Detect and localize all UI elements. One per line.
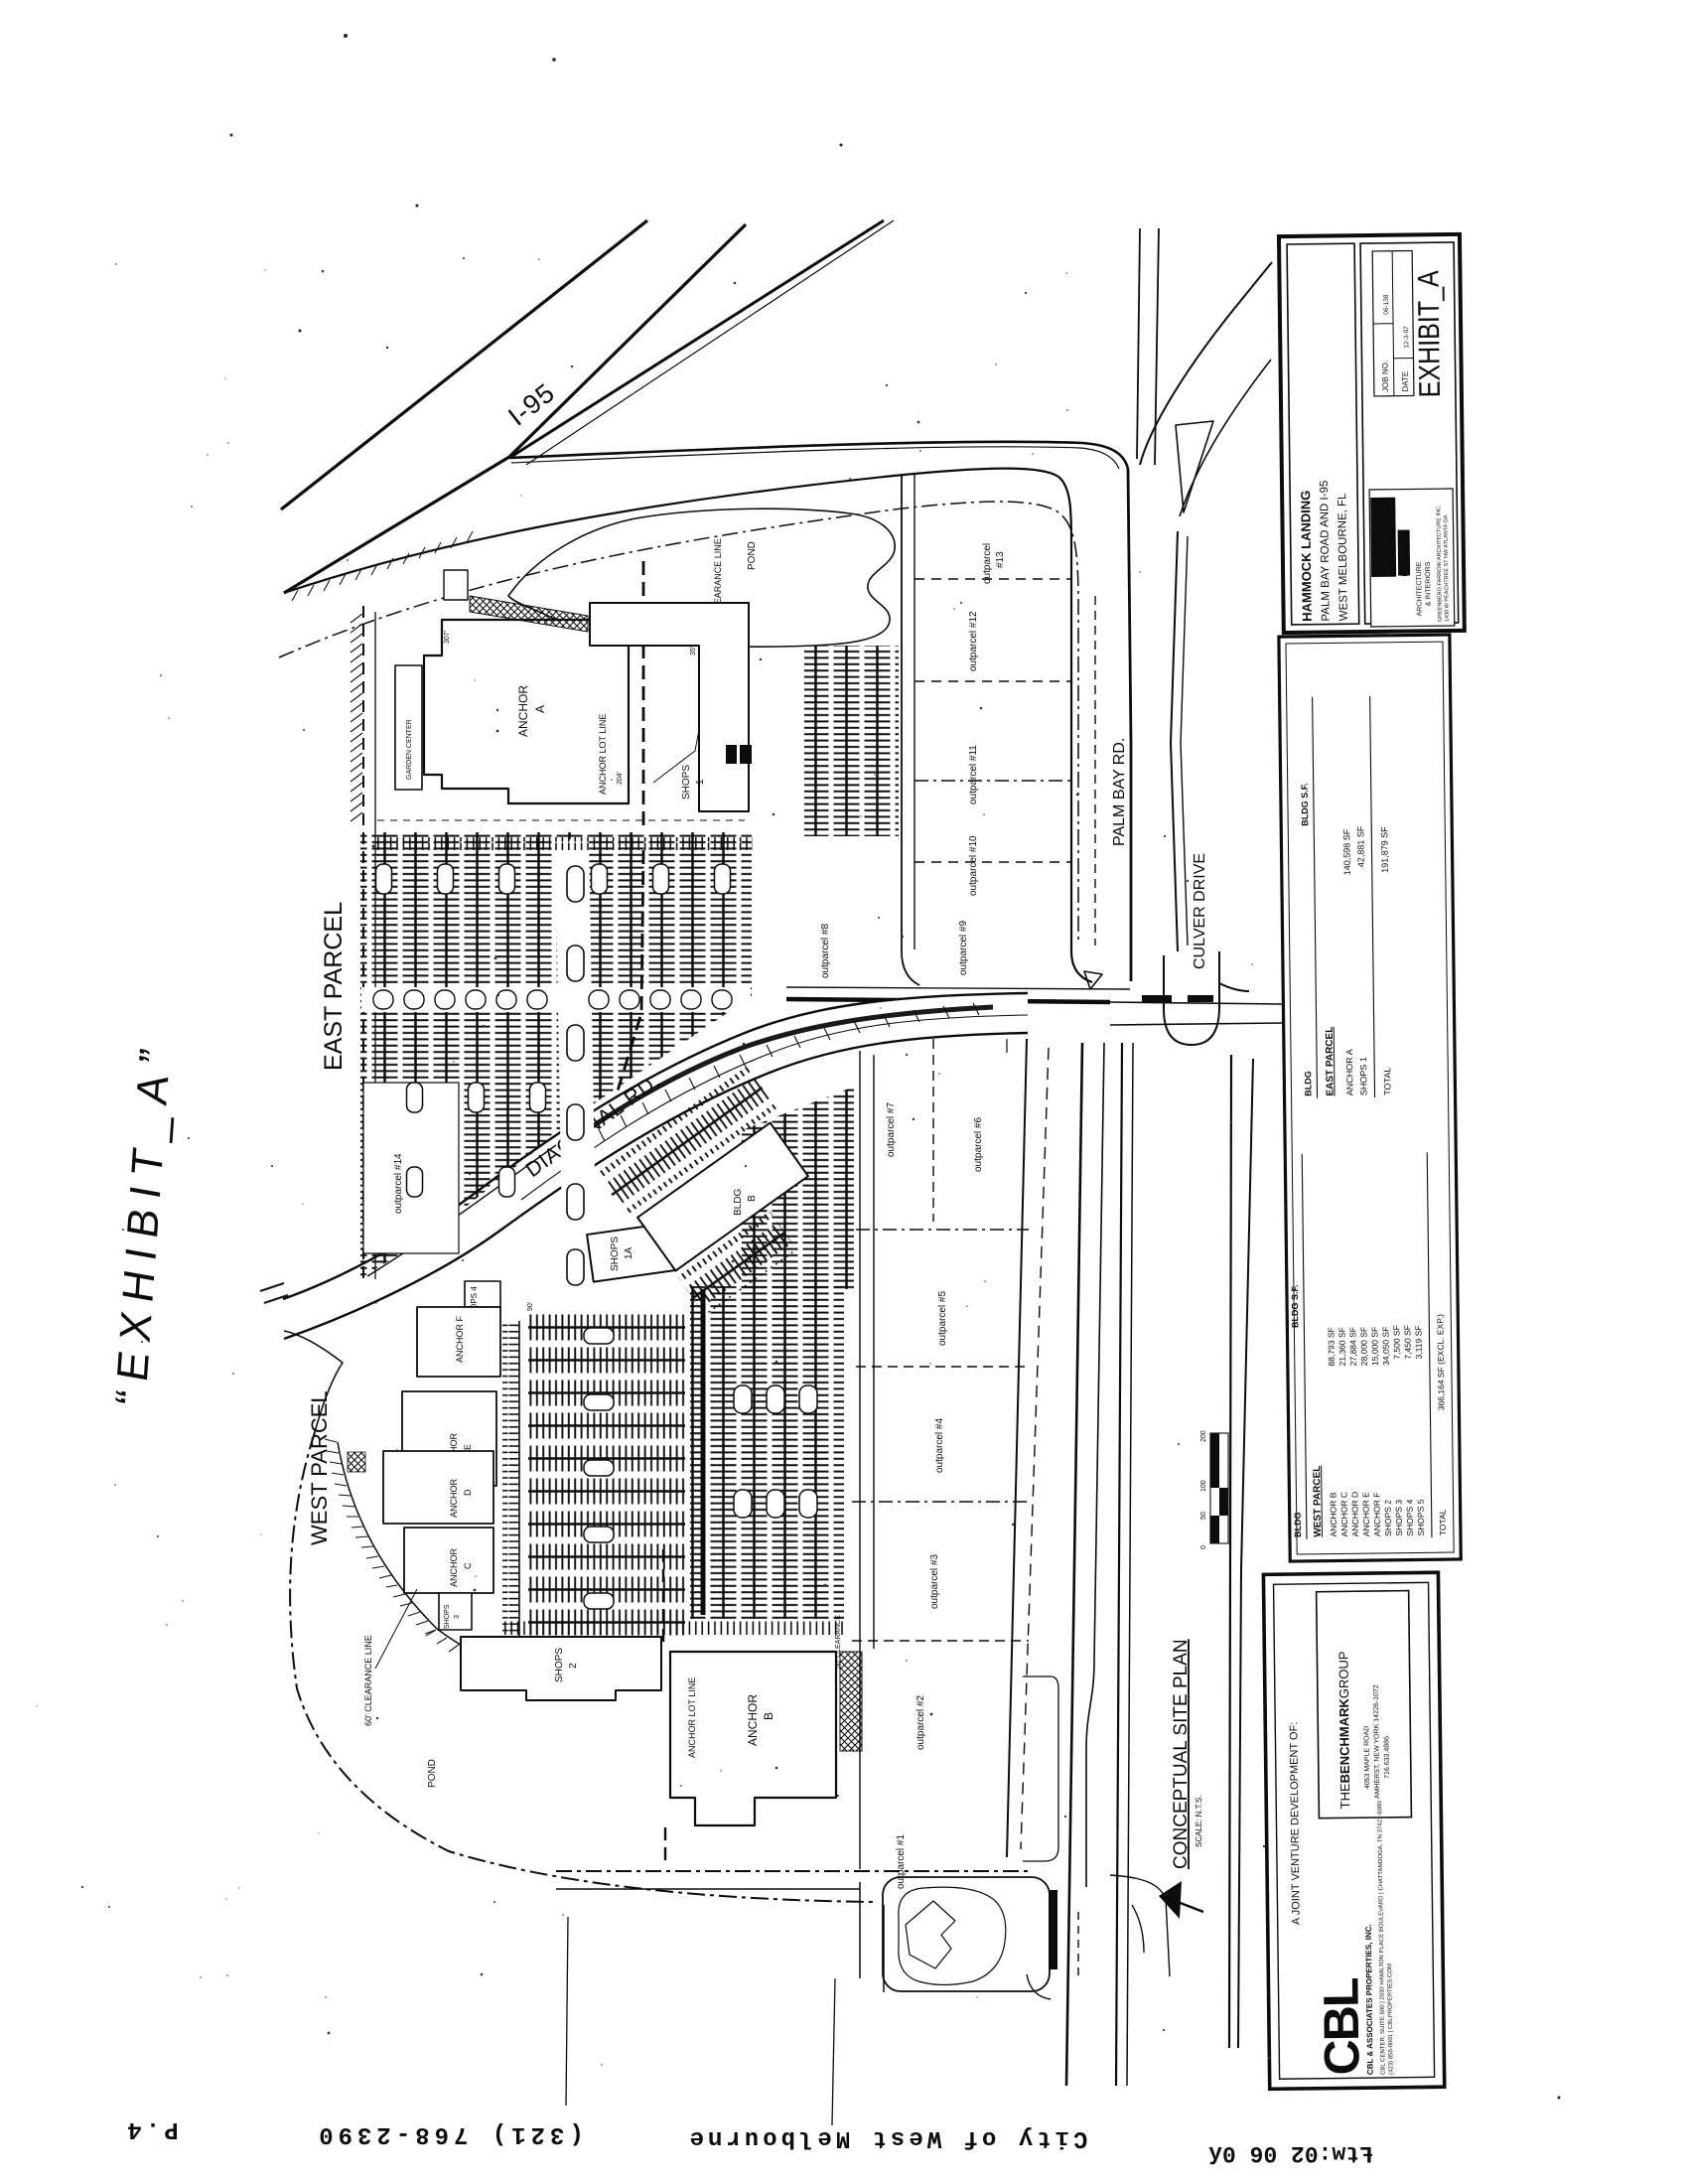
svg-text:CONCEPTUAL SITE PLAN: CONCEPTUAL SITE PLAN (1171, 1639, 1192, 1869)
svg-text:outparcel #5: outparcel #5 (937, 1291, 948, 1346)
svg-text:1A: 1A (624, 1246, 634, 1259)
svg-text:THEBENCHMARKGROUP: THEBENCHMARKGROUP (1336, 1651, 1352, 1809)
svg-text:HAMMOCK LANDING: HAMMOCK LANDING (1298, 491, 1315, 622)
svg-text:366,164 SF (EXCL. EXP.): 366,164 SF (EXCL. EXP.) (1435, 1314, 1446, 1410)
svg-text:WEST PARCEL: WEST PARCEL (307, 1390, 332, 1545)
svg-text:SHOPS: SHOPS (681, 765, 692, 800)
svg-text:B: B (762, 1712, 775, 1720)
svg-text:E: E (463, 1444, 473, 1450)
svg-text:ANCHOR C: ANCHOR C (1338, 1492, 1349, 1536)
svg-text:SCALE: N.T.S.: SCALE: N.T.S. (1195, 1796, 1203, 1847)
svg-text:C: C (463, 1562, 473, 1569)
svg-text:DATE: DATE (1401, 371, 1410, 392)
svg-text:ANCHOR: ANCHOR (449, 1478, 459, 1518)
svg-text:outparcel #7: outparcel #7 (886, 1102, 897, 1157)
svg-text:D: D (463, 1489, 473, 1496)
svg-text:ANCHOR: ANCHOR (449, 1547, 459, 1587)
svg-text:EXHIBIT_A: EXHIBIT_A (1412, 270, 1447, 397)
svg-text:ANCHOR E: ANCHOR E (1360, 1492, 1371, 1536)
svg-text:ANCHOR D: ANCHOR D (1349, 1492, 1360, 1536)
svg-text:AMHERST, NEW YORK 14226-1072: AMHERST, NEW YORK 14226-1072 (1373, 1684, 1381, 1799)
svg-text:200: 200 (1200, 1430, 1207, 1442)
svg-text:TOTAL: TOTAL (1438, 1509, 1448, 1535)
svg-text:JOB NO.: JOB NO. (1380, 361, 1389, 392)
svg-text:BLDG: BLDG (1293, 1512, 1303, 1537)
svg-text:outparcel #10: outparcel #10 (968, 835, 979, 896)
svg-text:A: A (533, 705, 547, 713)
svg-text:3,119 SF: 3,119 SF (1413, 1326, 1423, 1360)
svg-text:4053 MAPLE ROAD: 4053 MAPLE ROAD (1363, 1726, 1371, 1790)
svg-text:RETAIL: RETAIL (1402, 551, 1409, 577)
svg-text:2: 2 (568, 1663, 579, 1669)
svg-text:CBL: CBL (1313, 1978, 1369, 2076)
svg-text:307': 307' (444, 631, 451, 644)
svg-text:PALM BAY RD.: PALM BAY RD. (1111, 738, 1128, 846)
svg-text:204': 204' (617, 772, 624, 785)
svg-text:SHOPS 3: SHOPS 3 (1394, 1500, 1404, 1536)
svg-text:A JOINT VENTURE DEVELOPMENT OF: A JOINT VENTURE DEVELOPMENT OF: (1288, 1722, 1302, 1925)
svg-text:ANCHOR B: ANCHOR B (1328, 1492, 1338, 1536)
svg-text:140,598 SF: 140,598 SF (1341, 828, 1352, 875)
svg-text:1: 1 (695, 779, 706, 785)
svg-text:ANCHOR LOT LINE: ANCHOR LOT LINE (598, 714, 608, 795)
svg-text:outparcel: outparcel (982, 543, 993, 584)
svg-text:88,793 SF: 88,793 SF (1326, 1327, 1336, 1366)
svg-text:EAST PARCEL: EAST PARCEL (1325, 1027, 1336, 1096)
svg-text:60' CLEARANCE LINE: 60' CLEARANCE LINE (363, 1635, 373, 1726)
svg-text:SHOPS: SHOPS (554, 1648, 565, 1682)
svg-text:outparcel #9: outparcel #9 (958, 921, 969, 975)
svg-text:ANCHOR F: ANCHOR F (455, 1315, 465, 1363)
svg-text:outparcel #11: outparcel #11 (968, 745, 979, 804)
svg-text:SHOPS 1: SHOPS 1 (1358, 1057, 1368, 1095)
svg-text:POND: POND (747, 541, 758, 570)
svg-text:BLDG: BLDG (1303, 1071, 1313, 1096)
svg-text:21,360 SF: 21,360 SF (1336, 1327, 1346, 1366)
svg-text:ANCHOR F: ANCHOR F (1371, 1493, 1382, 1537)
svg-text:716.633.4886: 716.633.4886 (1383, 1736, 1391, 1779)
svg-text:outparcel #4: outparcel #4 (934, 1418, 945, 1473)
svg-text:outparcel #6: outparcel #6 (973, 1117, 984, 1172)
svg-text:Ƚtʍ:02 06 0ʎ: Ƚtʍ:02 06 0ʎ (1208, 2140, 1373, 2166)
svg-text:BLDG S.F.: BLDG S.F. (1290, 1284, 1301, 1328)
svg-text:191,879 SF: 191,879 SF (1379, 826, 1390, 873)
svg-text:SHOPS: SHOPS (444, 1604, 451, 1629)
svg-text:ANCHOR: ANCHOR (516, 685, 530, 737)
svg-text:ANCHOR LOT LINE: ANCHOR LOT LINE (687, 1677, 697, 1758)
svg-text:50: 50 (1200, 1512, 1207, 1520)
svg-text:P.4: P.4 (123, 2115, 178, 2142)
svg-text:outparcel #14: outparcel #14 (393, 1153, 404, 1214)
svg-text:GARDEN CENTER: GARDEN CENTER (406, 719, 413, 780)
svg-text:15,000 SF: 15,000 SF (1369, 1327, 1379, 1366)
svg-text:7,450 SF: 7,450 SF (1402, 1325, 1412, 1360)
svg-text:#13: #13 (995, 551, 1006, 568)
svg-text:BLDG S.F.: BLDG S.F. (1300, 783, 1311, 826)
svg-text:0: 0 (1200, 1545, 1207, 1549)
svg-text:CULVER DRIVE: CULVER DRIVE (1192, 853, 1208, 969)
svg-text:SHOPS 2: SHOPS 2 (1383, 1500, 1393, 1536)
svg-text:outparcel #8: outparcel #8 (820, 924, 831, 978)
svg-text:outparcel #3: outparcel #3 (929, 1554, 940, 1609)
svg-text:POND: POND (427, 1759, 438, 1788)
svg-text:BLDG: BLDG (733, 1189, 744, 1216)
svg-text:100: 100 (1200, 1480, 1207, 1492)
svg-text:TOTAL: TOTAL (1382, 1068, 1392, 1095)
svg-text:& INTERIORS: & INTERIORS (1425, 561, 1433, 606)
svg-text:outparcel #1: outparcel #1 (896, 1834, 907, 1889)
svg-text:ANCHOR A: ANCHOR A (1344, 1049, 1355, 1095)
svg-text:3: 3 (454, 1615, 461, 1619)
svg-text:27,884 SF: 27,884 SF (1347, 1327, 1357, 1366)
svg-text:PALM BAY ROAD AND I-95: PALM BAY ROAD AND I-95 (1319, 481, 1333, 622)
svg-text:(321) 768-2390: (321) 768-2390 (314, 2120, 584, 2147)
svg-text:ANCHOR: ANCHOR (746, 1694, 760, 1746)
svg-text:35': 35' (690, 647, 697, 655)
svg-text:34,050 SF: 34,050 SF (1380, 1327, 1390, 1366)
svg-text:outparcel #12: outparcel #12 (968, 611, 979, 671)
svg-text:outparcel #2: outparcel #2 (915, 1695, 926, 1750)
svg-text:WEST PARCEL: WEST PARCEL (1312, 1466, 1324, 1537)
svg-text:28,000 SF: 28,000 SF (1358, 1327, 1368, 1366)
svg-text:12-3-07: 12-3-07 (1403, 326, 1410, 349)
svg-text:City of West Melbourne: City of West Melbourne (686, 2124, 1088, 2151)
svg-text:EAST PARCEL: EAST PARCEL (320, 902, 348, 1071)
svg-text:SHOPS: SHOPS (610, 1237, 621, 1271)
svg-text:7,500 SF: 7,500 SF (1391, 1325, 1401, 1360)
svg-text:90': 90' (527, 1302, 534, 1311)
svg-text:SHOPS 5: SHOPS 5 (1416, 1499, 1426, 1535)
svg-text:CBL & ASSOCIATES PROPERTIES, I: CBL & ASSOCIATES PROPERTIES, INC. (1364, 1924, 1375, 2075)
svg-text:42,881 SF: 42,881 SF (1355, 825, 1366, 867)
svg-text:B: B (747, 1195, 758, 1202)
svg-text:ARCHITECTURE: ARCHITECTURE (1416, 561, 1424, 616)
svg-text:SHOPS 4: SHOPS 4 (1405, 1499, 1415, 1535)
svg-text:06-138: 06-138 (1383, 294, 1390, 315)
svg-text:WEST MELBOURNE, FL: WEST MELBOURNE, FL (1336, 493, 1350, 622)
